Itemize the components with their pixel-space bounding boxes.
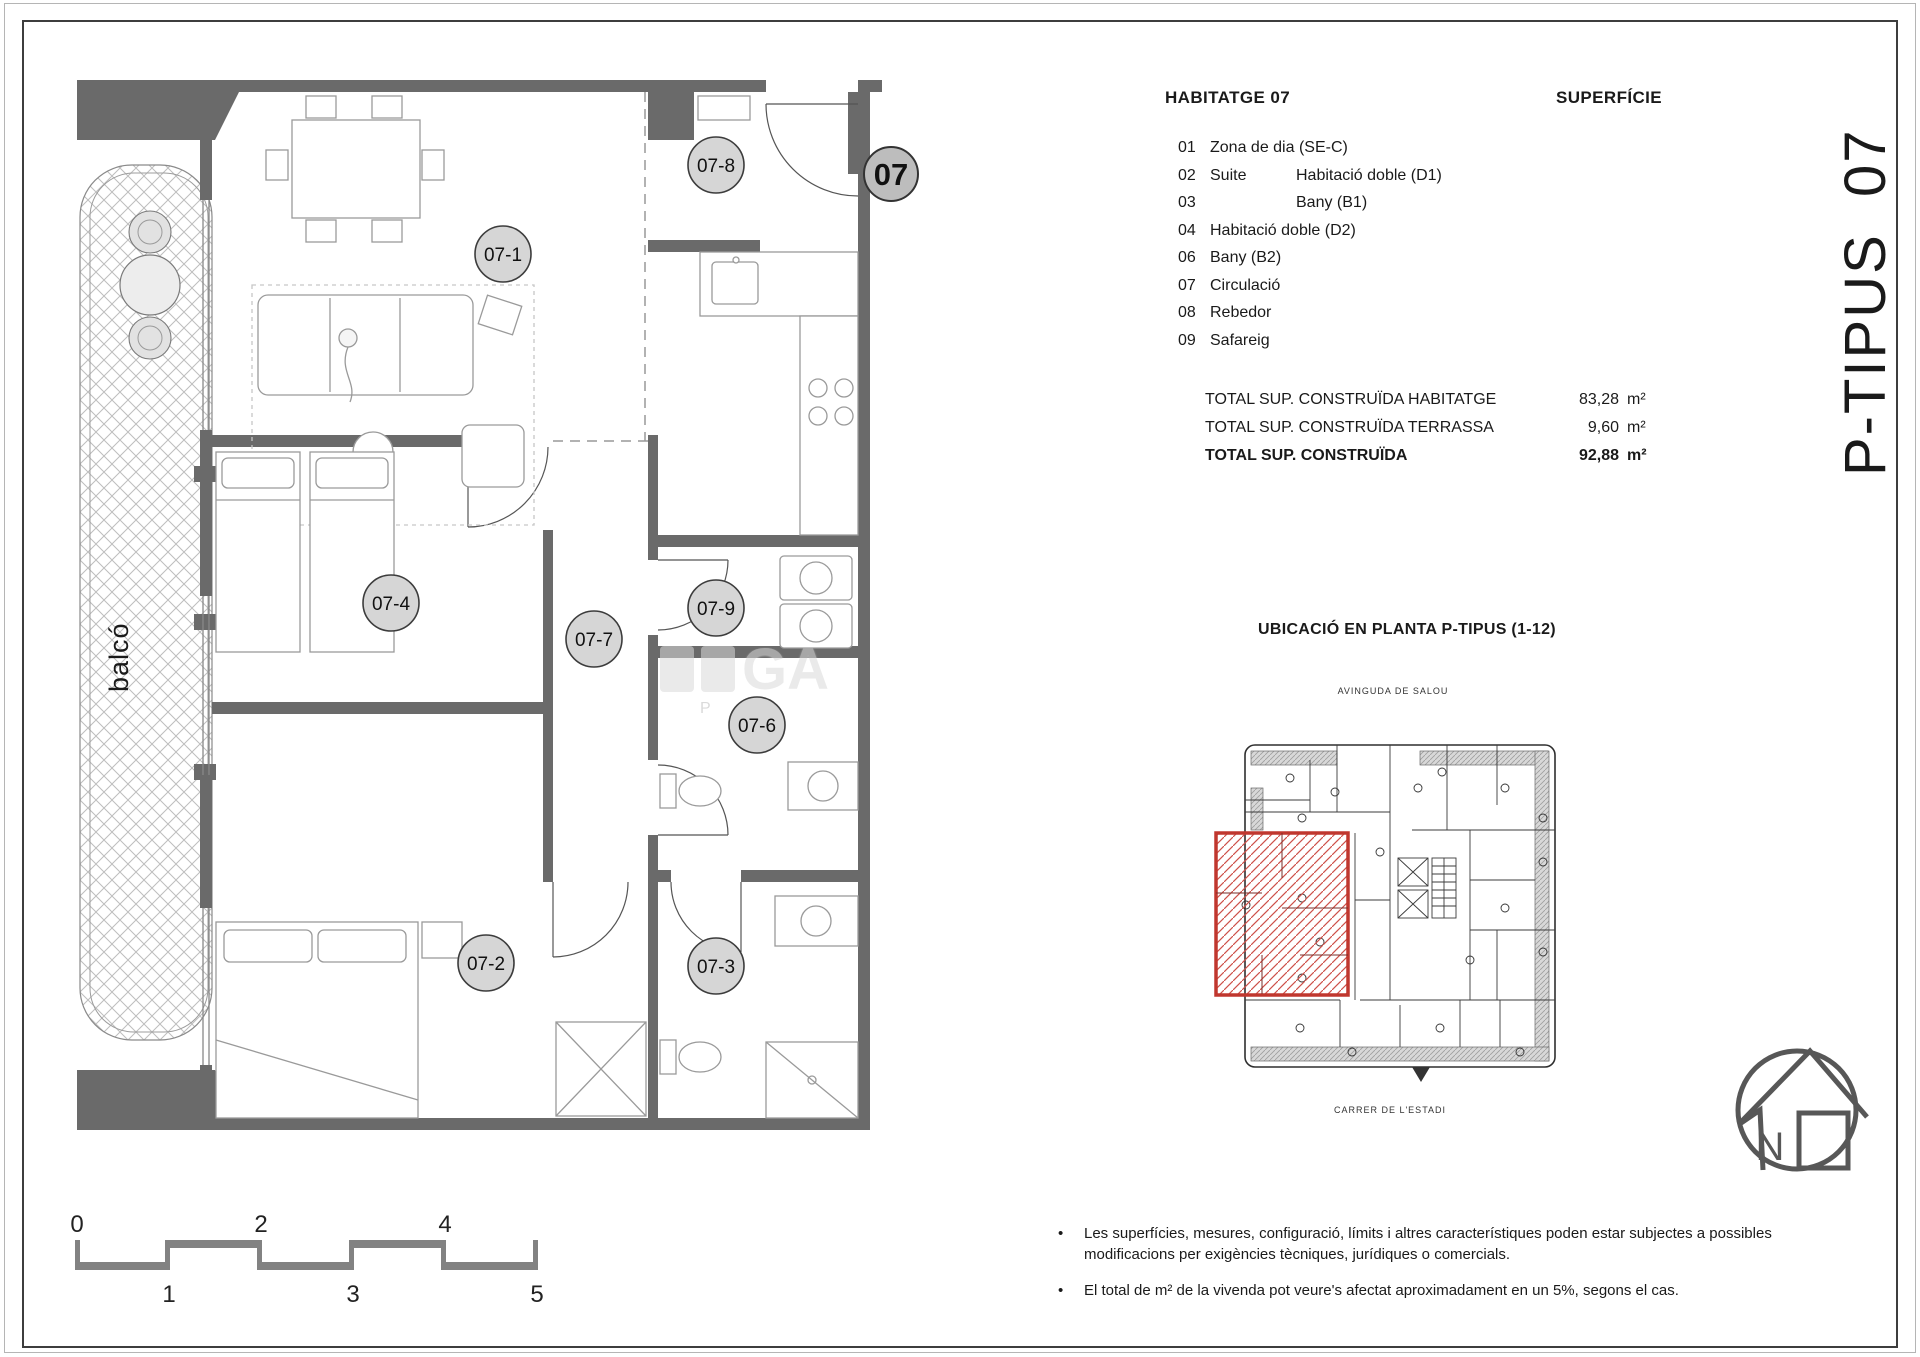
svg-text:07: 07: [874, 157, 908, 192]
location-plan: AVINGUDA DE SALOU CARRER DE L'ESTADI: [1216, 686, 1555, 1115]
dashed-dividers: [553, 92, 648, 441]
svg-text:07-2: 07-2: [467, 954, 505, 975]
sofa: [258, 295, 473, 395]
balcony: balcó: [80, 165, 212, 1040]
footnote-text: El total de m² de la vivenda pot veure's…: [1084, 1281, 1838, 1302]
street-label-top: AVINGUDA DE SALOU: [1338, 686, 1449, 696]
north-label: N: [1756, 1125, 1785, 1169]
room-row: 09Safareig: [1178, 327, 1648, 355]
sheet-title-vertical: P-TIPUS 07: [1836, 56, 1898, 476]
pillow: [316, 458, 388, 488]
room-label: Circulació: [1210, 272, 1296, 300]
room-label: Bany (B2): [1210, 244, 1296, 272]
room-sublabel: [1296, 299, 1648, 327]
room-badge: 07-1: [475, 226, 531, 282]
total-label: TOTAL SUP. CONSTRUÏDA: [1205, 442, 1549, 470]
total-unit: m²: [1619, 414, 1657, 442]
total-value: 9,60: [1549, 414, 1619, 442]
room-row: 02SuiteHabitació doble (D1): [1178, 162, 1648, 190]
footnote-text: Les superfícies, mesures, configuració, …: [1084, 1224, 1838, 1265]
svg-text:07-8: 07-8: [697, 156, 735, 177]
room-num: 04: [1178, 217, 1210, 245]
person-figure: [339, 329, 357, 347]
pillow: [318, 930, 406, 962]
room-row: 03Bany (B1): [1178, 189, 1648, 217]
vanity: [775, 896, 858, 946]
toilet: [679, 1042, 721, 1072]
room-num: 06: [1178, 244, 1210, 272]
svg-text:3: 3: [346, 1281, 359, 1308]
svg-text:07-3: 07-3: [697, 957, 735, 978]
drawing-sheet: balcó: [0, 0, 1920, 1357]
room-num: 03: [1178, 189, 1210, 217]
total-value: 92,88: [1549, 442, 1619, 470]
balcony-table: [120, 255, 180, 315]
room-sublabel: Bany (B1): [1296, 189, 1648, 217]
footnotes: • Les superfícies, mesures, configuració…: [1058, 1224, 1838, 1318]
scale-bar-segments: [75, 1240, 538, 1270]
corner-pillar: [77, 80, 245, 140]
superficie-heading: SUPERFÍCIE: [1556, 88, 1662, 108]
room-sublabel: [1296, 217, 1648, 245]
room-row: 08Rebedor: [1178, 299, 1648, 327]
svg-text:4: 4: [438, 1211, 451, 1238]
room-num: 09: [1178, 327, 1210, 355]
balcony-label: balcó: [104, 622, 134, 692]
pillow: [222, 458, 294, 488]
svg-text:0: 0: [70, 1211, 83, 1238]
room-label: Zona de dia (SE-C): [1210, 134, 1296, 162]
hob-burner: [809, 379, 827, 397]
room-label: Safareig: [1210, 327, 1296, 355]
furniture: [216, 96, 858, 1118]
apartment-plan: balcó: [77, 80, 918, 1130]
total-row-grand: TOTAL SUP. CONSTRUÏDA92,88m²: [1205, 442, 1657, 470]
room-badge: 07-3: [688, 938, 744, 994]
total-label: TOTAL SUP. CONSTRUÏDA HABITATGE: [1205, 386, 1549, 414]
toilet-tank: [660, 774, 676, 808]
room-badge: 07-8: [688, 137, 744, 193]
cabinet: [698, 96, 750, 120]
dining-table: [292, 120, 420, 218]
bullet-icon: •: [1058, 1281, 1084, 1302]
room-label: Rebedor: [1210, 299, 1296, 327]
room-num: 08: [1178, 299, 1210, 327]
north-compass-icon: N: [1738, 1051, 1867, 1170]
room-sublabel: [1296, 244, 1648, 272]
svg-text:07-4: 07-4: [372, 594, 410, 615]
kitchen-sink: [712, 262, 758, 304]
nightstand: [422, 922, 462, 958]
cushion: [478, 295, 522, 335]
unit-number-badge: 07: [864, 147, 918, 201]
watermark-subtext: P: [700, 700, 711, 718]
balcony-chair: [129, 211, 171, 253]
svg-text:2: 2: [254, 1211, 267, 1238]
room-list: 01Zona de dia (SE-C) 02SuiteHabitació do…: [1178, 134, 1648, 354]
total-label: TOTAL SUP. CONSTRUÏDA TERRASSA: [1205, 414, 1549, 442]
room-num: 01: [1178, 134, 1210, 162]
highlighted-unit: [1216, 833, 1348, 995]
footnote: • El total de m² de la vivenda pot veure…: [1058, 1281, 1838, 1302]
room-badge: 07-9: [688, 580, 744, 636]
room-badge: 07-2: [458, 935, 514, 991]
svg-text:07-6: 07-6: [738, 716, 776, 737]
room-sublabel: [1296, 327, 1648, 355]
room-badge: 07-7: [566, 611, 622, 667]
toilet: [679, 776, 721, 806]
room-row: 06Bany (B2): [1178, 244, 1648, 272]
scale-numbers: 0 2 4 1 3 5: [70, 1211, 543, 1308]
room-badge: 07-6: [729, 697, 785, 753]
total-row: TOTAL SUP. CONSTRUÏDA TERRASSA9,60m²: [1205, 414, 1657, 442]
room-row: 07Circulació: [1178, 272, 1648, 300]
habitatge-heading: HABITATGE 07: [1165, 88, 1290, 108]
kitchen-counter: [800, 316, 858, 535]
room-row: 01Zona de dia (SE-C): [1178, 134, 1648, 162]
hob-burner: [809, 407, 827, 425]
hob-burner: [835, 407, 853, 425]
room-sublabel: [1296, 272, 1648, 300]
scale-bar: 0 2 4 1 3 5: [70, 1211, 543, 1308]
pillow: [224, 930, 312, 962]
room-label: [1210, 189, 1296, 217]
vanity: [788, 762, 858, 810]
total-unit: m²: [1619, 386, 1657, 414]
room-num: 02: [1178, 162, 1210, 190]
svg-text:5: 5: [530, 1281, 543, 1308]
balcony-chair: [129, 317, 171, 359]
room-row: 04Habitació doble (D2): [1178, 217, 1648, 245]
svg-text:07-1: 07-1: [484, 245, 522, 266]
area-totals: TOTAL SUP. CONSTRUÏDA HABITATGE83,28m² T…: [1205, 386, 1657, 470]
hob-burner: [835, 379, 853, 397]
bullet-icon: •: [1058, 1224, 1084, 1265]
armchair: [462, 425, 524, 487]
room-label: Habitació doble (D2): [1210, 217, 1296, 245]
room-badge: 07-4: [363, 575, 419, 631]
total-value: 83,28: [1549, 386, 1619, 414]
svg-text:07-7: 07-7: [575, 630, 613, 651]
room-sublabel: Habitació doble (D1): [1296, 162, 1648, 190]
entrance-arrow-icon: [1412, 1067, 1430, 1082]
footnote: • Les superfícies, mesures, configuració…: [1058, 1224, 1838, 1265]
total-row: TOTAL SUP. CONSTRUÏDA HABITATGE83,28m²: [1205, 386, 1657, 414]
svg-text:07-9: 07-9: [697, 599, 735, 620]
pillar: [648, 80, 694, 140]
room-sublabel: [1296, 134, 1648, 162]
svg-text:1: 1: [162, 1281, 175, 1308]
location-heading: UBICACIÓ EN PLANTA P-TIPUS (1-12): [1258, 621, 1556, 639]
toilet-tank: [660, 1040, 676, 1074]
sheet-title-text: P-TIPUS 07: [1836, 56, 1896, 476]
room-num: 07: [1178, 272, 1210, 300]
total-unit: m²: [1619, 442, 1657, 470]
street-label-bottom: CARRER DE L'ESTADI: [1334, 1105, 1446, 1115]
room-label: Suite: [1210, 162, 1296, 190]
